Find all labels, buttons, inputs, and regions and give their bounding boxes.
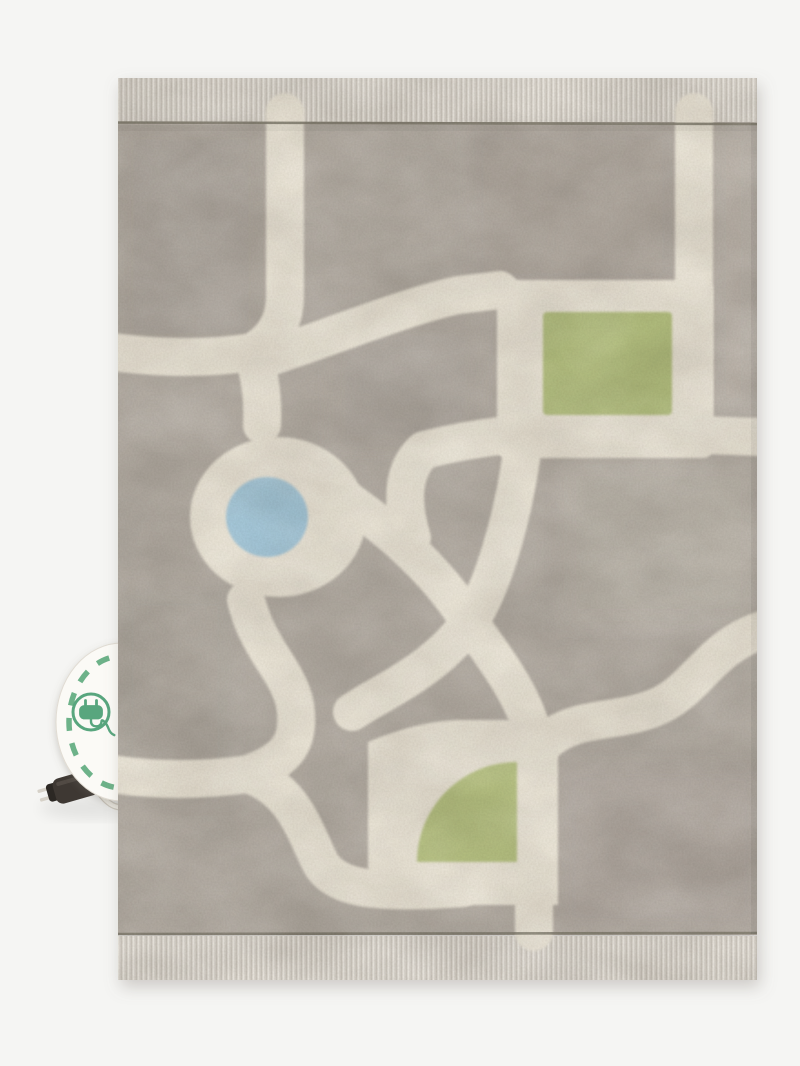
rug-product-photo bbox=[0, 0, 800, 1066]
pile-grain bbox=[118, 78, 757, 980]
play-rug bbox=[112, 78, 762, 980]
plug-icon-body bbox=[81, 707, 102, 719]
